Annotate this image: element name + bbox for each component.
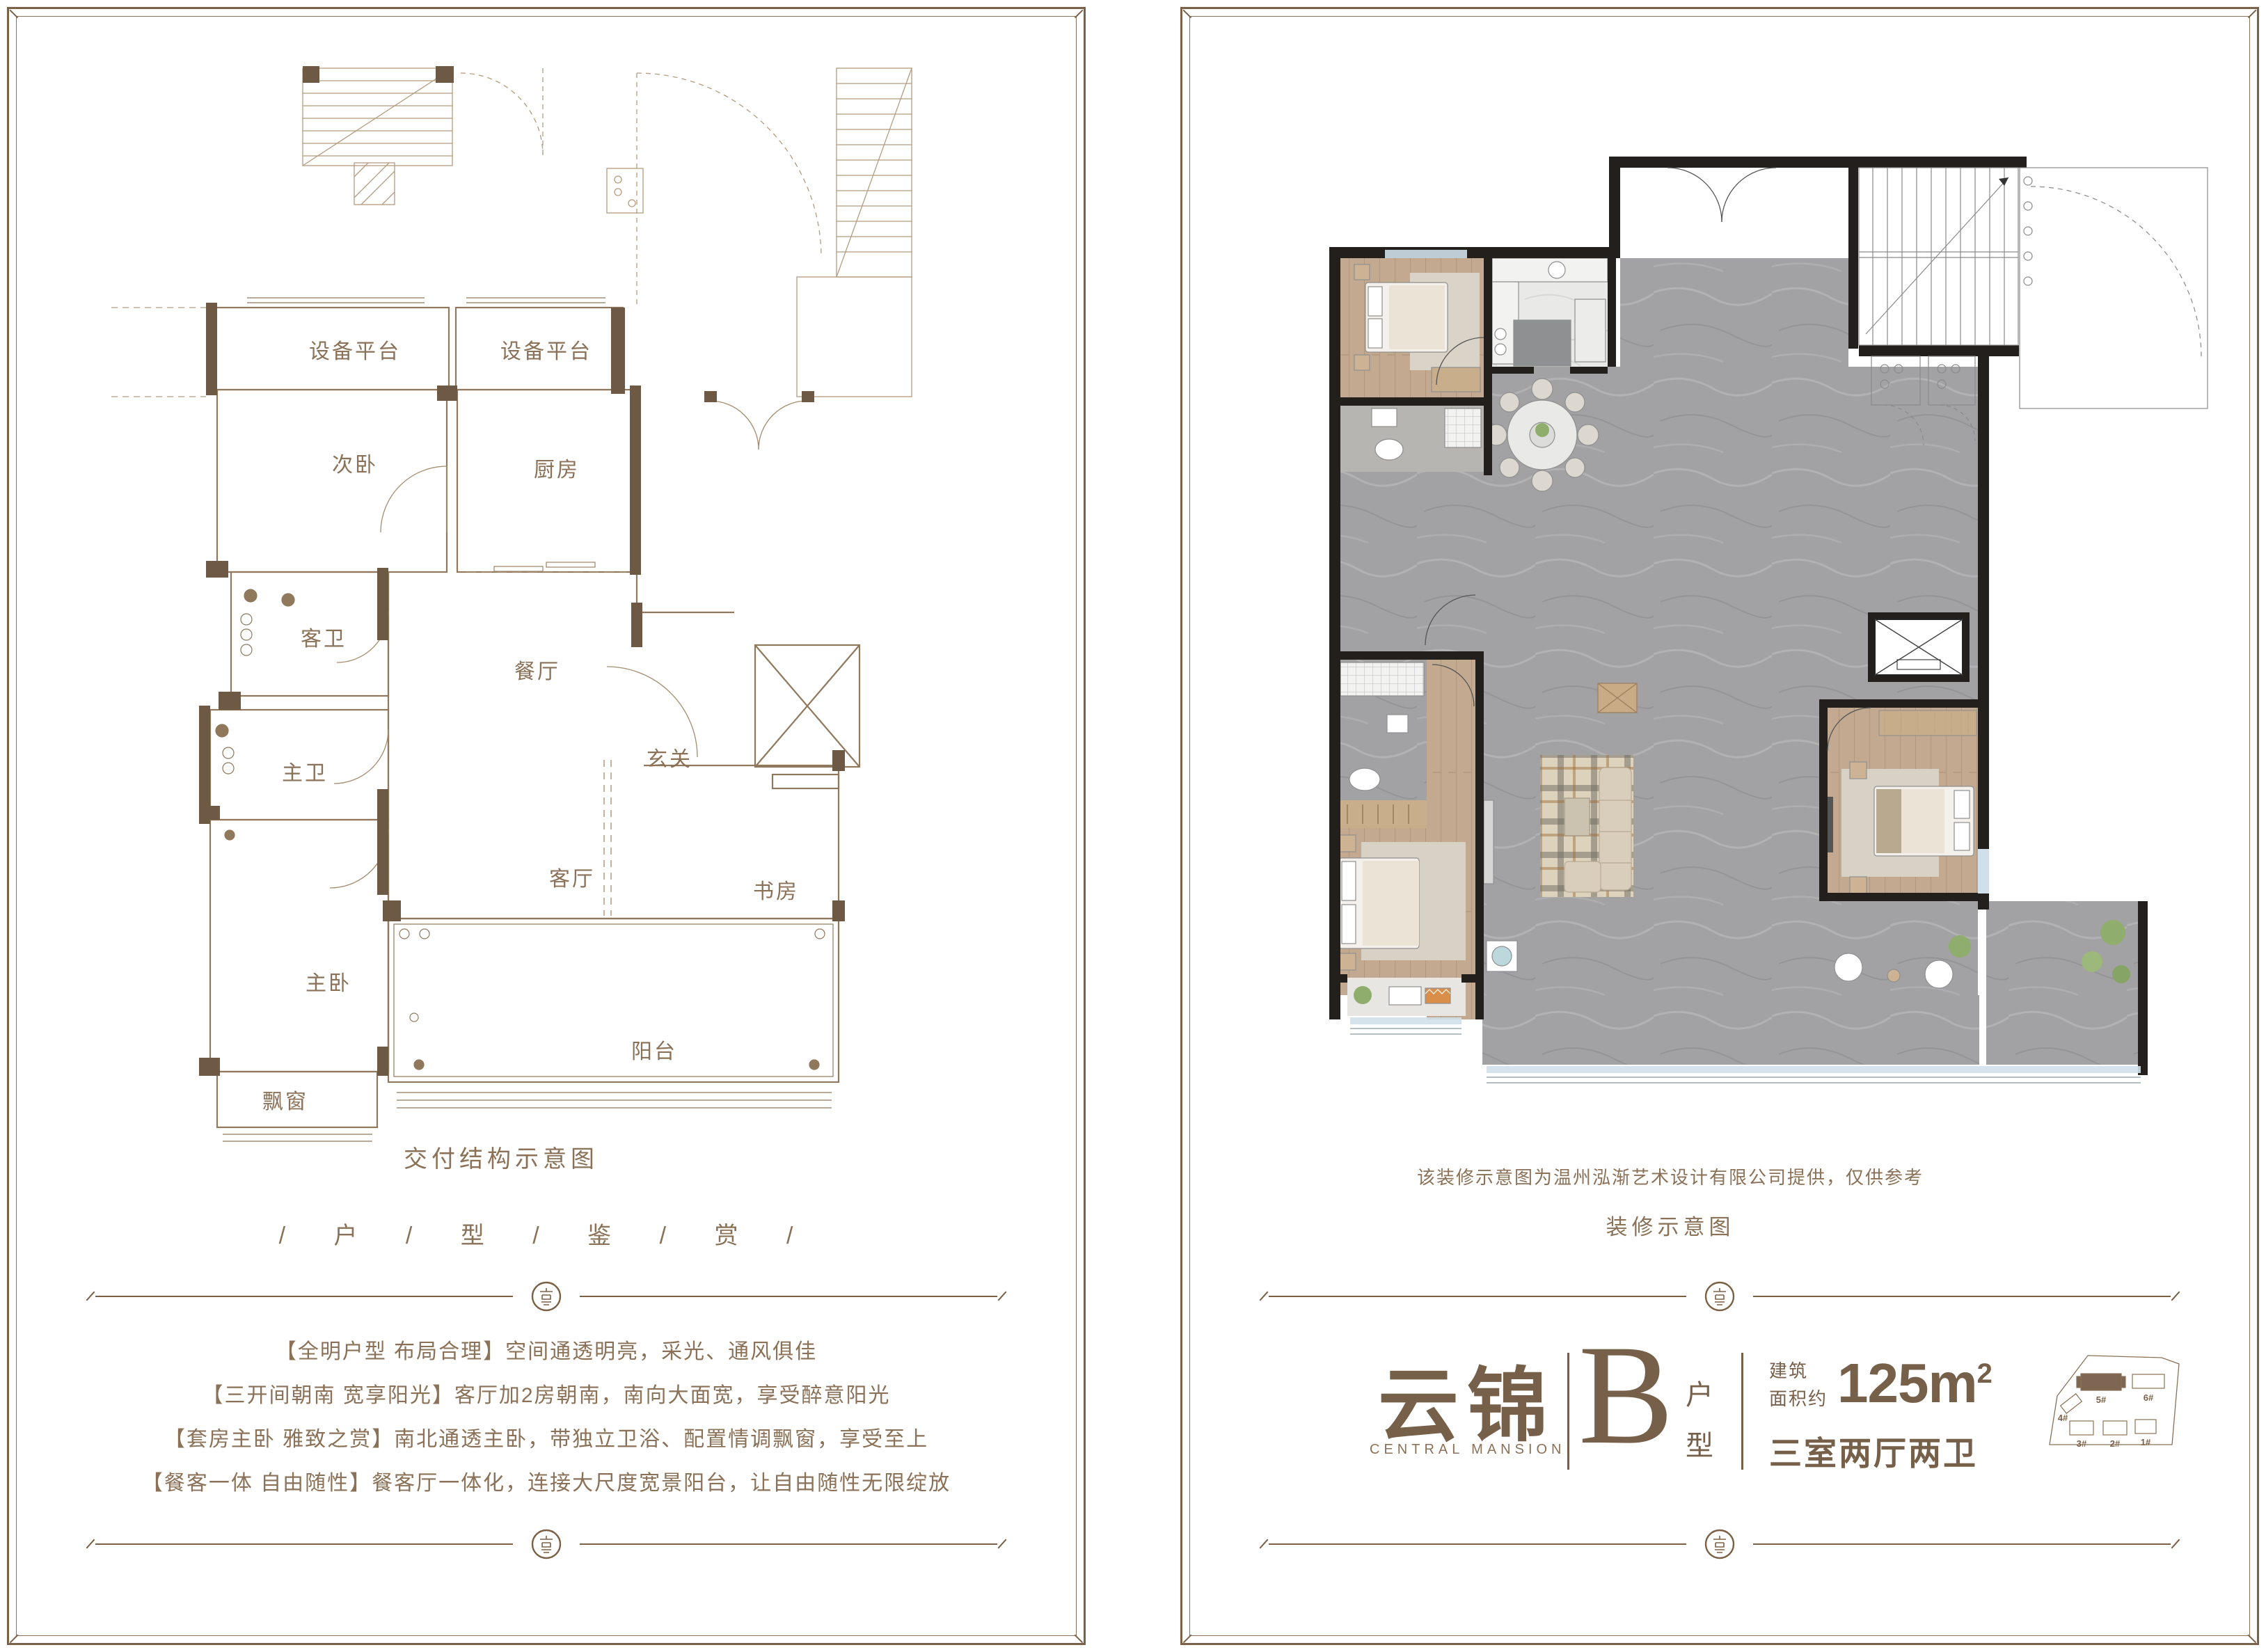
site-label-5: 5# xyxy=(2096,1395,2107,1405)
ornament-divider xyxy=(1260,1528,2179,1560)
room-label-balcony: 阳台 xyxy=(631,1034,677,1065)
area-label-line2: 面积约 xyxy=(1769,1385,1828,1411)
divider-tick xyxy=(998,1292,1007,1301)
site-label-3: 3# xyxy=(2077,1438,2087,1449)
divider-tick xyxy=(86,1292,95,1301)
divider-line xyxy=(95,1543,513,1545)
room-label-living: 客厅 xyxy=(549,861,595,892)
area-label-line1: 建筑 xyxy=(1769,1357,1808,1383)
ornament-divider xyxy=(87,1528,1006,1560)
series-title: / 户 / 型 / 鉴 / 赏 / xyxy=(7,1216,1086,1250)
area-value: 125m2 xyxy=(1837,1351,1992,1415)
site-building-5-highlighted xyxy=(2077,1374,2125,1390)
site-building-4 xyxy=(2061,1394,2082,1413)
room-label-guest-bath: 客卫 xyxy=(301,621,347,652)
divider-line xyxy=(1269,1296,1686,1297)
divider-line xyxy=(1753,1296,2171,1297)
room-label-study: 书房 xyxy=(753,874,799,905)
feature-line-4: 【餐客一体 自由随性】餐客厅一体化，连接大尺度宽景阳台，让自由随性无限绽放 xyxy=(7,1469,1086,1498)
brand-name-en: CENTRAL MANSION xyxy=(1370,1442,1564,1458)
seal-medallion-icon xyxy=(1704,1280,1736,1312)
brochure-page: { "left_panel": { "rooms": ["设备平台","设备平台… xyxy=(0,0,2266,1652)
room-label-second-bedroom: 次卧 xyxy=(332,447,378,478)
ornament-divider xyxy=(87,1280,1006,1312)
room-label-master-bath: 主卫 xyxy=(282,756,328,786)
feature-line-2: 【三开间朝南 宽享阳光】客厅加2房朝南，南向大面宽，享受醉意阳光 xyxy=(7,1381,1086,1411)
site-building-3 xyxy=(2070,1421,2093,1435)
site-label-4: 4# xyxy=(2058,1413,2068,1423)
room-label-dining: 餐厅 xyxy=(514,654,560,685)
unit-letter: B xyxy=(1578,1324,1674,1466)
brand-divider xyxy=(1741,1353,1743,1470)
site-map: 5# 6# 3# 2# 1# 4# xyxy=(2042,1335,2188,1467)
feature-line-3: 【套房主卧 雅致之赏】南北通透主卧，带独立卫浴、配置情调飘窗，享受至上 xyxy=(7,1425,1086,1454)
unit-type-char-2: 型 xyxy=(1686,1423,1713,1463)
seal-medallion-icon xyxy=(1704,1528,1736,1560)
windows-and-fixtures xyxy=(216,298,833,1141)
divider-line xyxy=(580,1543,997,1545)
feature-line-1: 【全明户型 布局合理】空间通透明亮，采光、通风俱佳 xyxy=(7,1337,1086,1367)
unit-type-char-1: 户 xyxy=(1686,1372,1713,1413)
left-plan-caption: 交付结构示意图 xyxy=(7,1140,995,1174)
divider-tick xyxy=(1260,1292,1269,1301)
room-label-master-bedroom: 主卧 xyxy=(306,966,351,996)
divider-line xyxy=(580,1296,997,1297)
room-label-foyer: 玄关 xyxy=(647,742,692,772)
layout-summary: 三室两厅两卫 xyxy=(1769,1427,1978,1475)
area-number: 125m xyxy=(1837,1352,1977,1414)
room-label-bay-window: 飘窗 xyxy=(262,1084,308,1115)
render-disclaimer: 该装修示意图为温州泓渐艺术设计有限公司提供，仅供参考 xyxy=(1180,1163,2160,1189)
divider-tick xyxy=(998,1539,1007,1549)
ornament-divider xyxy=(1260,1280,2179,1312)
divider-tick xyxy=(2171,1292,2180,1301)
site-label-2: 2# xyxy=(2110,1438,2121,1449)
structural-plan-panel: 设备平台 设备平台 次卧 厨房 客卫 餐厅 玄关 主卫 主卧 客厅 书房 阳台 … xyxy=(7,7,1086,1645)
seal-medallion-icon xyxy=(530,1280,562,1312)
site-label-6: 6# xyxy=(2144,1392,2154,1403)
decorated-plan-panel: 该装修示意图为温州泓渐艺术设计有限公司提供，仅供参考 装修示意图 云锦 CENT… xyxy=(1180,7,2259,1645)
site-building-6 xyxy=(2132,1374,2164,1388)
site-building-2 xyxy=(2103,1421,2127,1435)
seal-medallion-icon xyxy=(530,1528,562,1560)
room-label-equipment-platform-2: 设备平台 xyxy=(500,334,592,365)
room-label-equipment-platform-1: 设备平台 xyxy=(309,334,401,365)
divider-line xyxy=(1269,1543,1686,1545)
divider-tick xyxy=(2171,1539,2180,1549)
brand-name: 云锦 xyxy=(1370,1340,1564,1457)
divider-tick xyxy=(86,1539,95,1549)
divider-tick xyxy=(1260,1539,1269,1549)
site-building-1 xyxy=(2135,1420,2156,1433)
elevator-shaft xyxy=(1875,619,1963,675)
room-label-kitchen: 厨房 xyxy=(534,452,580,483)
divider-line xyxy=(95,1296,513,1297)
right-plan-caption: 装修示意图 xyxy=(1180,1209,2160,1241)
brand-divider xyxy=(1567,1353,1569,1470)
divider-line xyxy=(1753,1543,2171,1545)
area-superscript: 2 xyxy=(1977,1358,1992,1389)
site-label-1: 1# xyxy=(2141,1437,2151,1447)
